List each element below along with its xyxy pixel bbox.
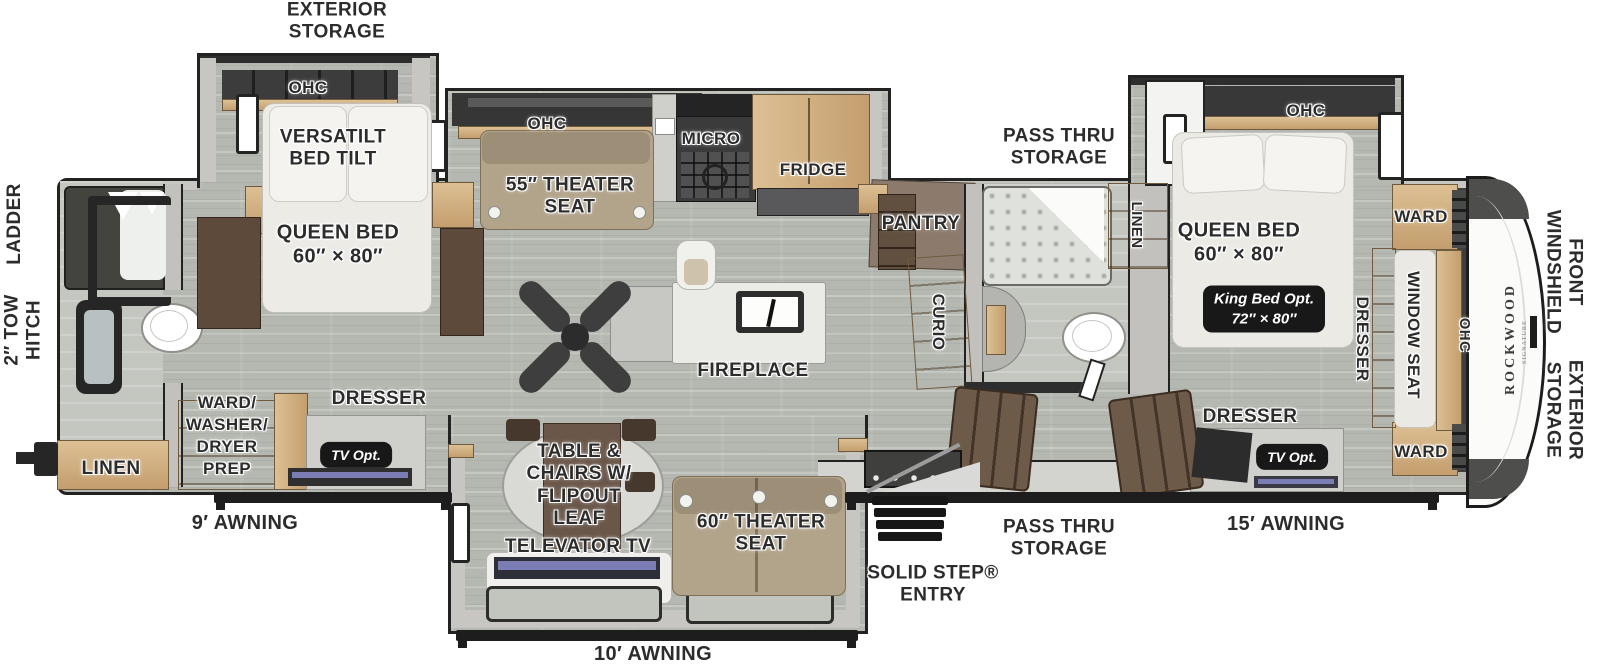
- stove-burner: [702, 164, 728, 190]
- label-solid-step-entry: SOLID STEP® ENTRY: [867, 563, 998, 608]
- prep-sink: [655, 118, 675, 135]
- front-dresser-tv: [1192, 427, 1253, 483]
- theater-seat-55-back: [482, 132, 650, 164]
- brand-series: SIGNATURE: [1522, 320, 1528, 364]
- label-versatilt: VERSATILT BED TILT: [280, 127, 386, 172]
- rear-wardrobe-right: [440, 228, 484, 336]
- mid-vanity-drawer: [986, 305, 1006, 355]
- label-tow-hitch: 2″ TOW HITCH: [2, 294, 47, 365]
- kitchen-tv: [468, 98, 653, 107]
- label-exterior-storage-rear: EXTERIOR STORAGE: [287, 0, 387, 44]
- label-window-seat: WINDOW SEAT: [1403, 271, 1423, 399]
- living-slide-left-cap: [448, 444, 474, 458]
- front-bed-pillow: [1263, 134, 1348, 194]
- entry-step: [876, 520, 944, 529]
- rear-wardrobe-left: [197, 217, 261, 329]
- bar-stool-seat: [684, 259, 708, 285]
- label-front-windshield: FRONT WINDSHIELD: [1541, 210, 1586, 334]
- label-fireplace: FIREPLACE: [697, 360, 808, 382]
- cupholder: [679, 494, 693, 508]
- hitch-pin-mark: [1530, 316, 1537, 348]
- label-dresser-rear: DRESSER: [332, 388, 427, 410]
- floorplan-diagram: ROCKWOOD SIGNATURE EXTERIOR STORAGE OHC …: [0, 0, 1600, 664]
- cupholder: [633, 206, 646, 219]
- label-awning-mid: 10′ AWNING: [594, 643, 712, 664]
- rear-slide-top-wall: [200, 56, 430, 63]
- label-micro: MICRO: [682, 129, 741, 149]
- label-curio: CURIO: [928, 294, 948, 351]
- label-front-ohc: OHC: [1287, 101, 1326, 121]
- rear-dresser-tv-screen: [292, 472, 408, 478]
- microwave: [676, 94, 754, 116]
- dinette-chair: [622, 419, 656, 441]
- cupholder: [824, 494, 838, 508]
- label-ladder: LADDER: [4, 183, 26, 265]
- rear-nightstand-right: [432, 182, 474, 228]
- label-ward-washer-dryer: WARD/ WASHER/ DRYER PREP: [186, 392, 268, 480]
- rail-foot: [458, 641, 467, 648]
- entry-step: [874, 508, 946, 517]
- badge-tv-opt-front: TV Opt.: [1256, 444, 1328, 470]
- label-theater-seat-60: 60″ THEATER SEAT: [697, 512, 825, 557]
- cupholder: [488, 206, 501, 219]
- rail-foot: [441, 503, 450, 510]
- label-pantry: PANTRY: [882, 213, 960, 235]
- label-rear-linen: LINEN: [82, 458, 141, 480]
- badge-tv-opt-rear: TV Opt.: [320, 442, 392, 468]
- rear-slide-window: [236, 94, 259, 154]
- badge-king-bed-opt: King Bed Opt. 72″ × 80″: [1203, 286, 1325, 333]
- tow-hitch-icon: [34, 442, 58, 476]
- fridge-drawers: [757, 188, 869, 216]
- dinette-chair: [506, 419, 540, 441]
- label-theater-seat-55: 55″ THEATER SEAT: [506, 175, 634, 220]
- rail-foot: [847, 641, 856, 648]
- awning-rail-rear: [214, 492, 452, 503]
- label-ward-bottom: WARD: [1394, 442, 1448, 462]
- label-table-chairs: TABLE & CHAIRS W/ FLIPOUT LEAF: [527, 441, 632, 531]
- tow-hitch-stub: [16, 452, 36, 464]
- label-pass-thru-bottom: PASS THRU STORAGE: [1003, 517, 1115, 562]
- label-fridge: FRIDGE: [780, 160, 847, 180]
- bedroom-steps-right: [1107, 389, 1204, 500]
- label-awning-rear: 9′ AWNING: [192, 512, 299, 536]
- brand-logo: ROCKWOOD: [1503, 283, 1519, 395]
- rail-foot: [216, 503, 225, 510]
- label-front-queen-bed: QUEEN BED 60″ × 80″: [1178, 219, 1301, 266]
- ladder-icon: [88, 196, 171, 306]
- entry-step: [872, 496, 948, 505]
- rear-slide-left-wall: [200, 58, 216, 182]
- rail-foot: [847, 503, 856, 510]
- front-wall-window: [1378, 112, 1404, 180]
- awning-rail-mid: [456, 630, 858, 641]
- label-mid-linen: LINEN: [1127, 202, 1145, 249]
- label-televator-tv: TELEVATOR TV: [505, 536, 651, 558]
- living-slide-window: [451, 503, 470, 563]
- rear-toilet-seat: [150, 310, 188, 342]
- label-rear-ohc: OHC: [289, 78, 328, 98]
- label-rear-queen-bed: QUEEN BED 60″ × 80″: [277, 221, 400, 268]
- label-awning-front: 15′ AWNING: [1227, 513, 1345, 537]
- floor-mat: [486, 586, 662, 622]
- label-kitchen-ohc: OHC: [528, 114, 567, 134]
- label-dresser-front: DRESSER: [1203, 406, 1298, 428]
- label-ohc-side: OHC: [1455, 318, 1473, 353]
- front-dresser-screen-glow: [1258, 479, 1334, 484]
- cupholder: [752, 490, 766, 504]
- label-pass-thru-top: PASS THRU STORAGE: [1003, 126, 1115, 171]
- entry-step: [878, 532, 942, 541]
- front-side-dresser: [1372, 248, 1396, 428]
- front-bed-pillow: [1181, 134, 1266, 194]
- televator-tv-screen-glow: [498, 561, 656, 570]
- label-dresser-side: DRESSER: [1352, 297, 1372, 382]
- rail-foot: [1428, 503, 1437, 510]
- label-ward-top: WARD: [1394, 207, 1448, 227]
- mid-toilet-seat: [1072, 320, 1112, 352]
- rear-window-glass: [84, 310, 114, 384]
- label-exterior-storage-front: EXTERIOR STORAGE: [1541, 360, 1586, 460]
- ceiling-fan-hub: [561, 323, 589, 351]
